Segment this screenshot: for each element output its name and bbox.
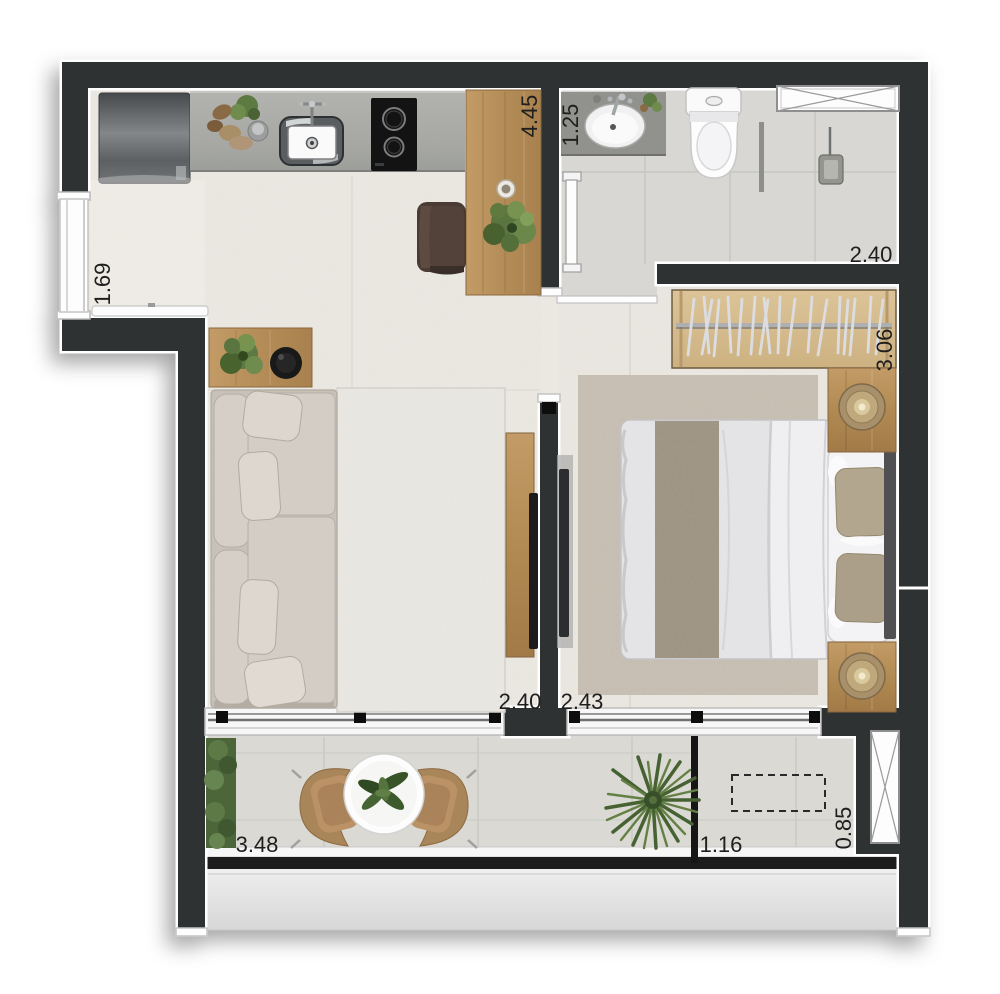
svg-text:0.85: 0.85 xyxy=(831,807,856,850)
svg-text:4.45: 4.45 xyxy=(517,95,542,138)
svg-text:2.43: 2.43 xyxy=(561,689,604,714)
svg-text:1.69: 1.69 xyxy=(90,263,115,306)
svg-text:3.48: 3.48 xyxy=(236,832,279,857)
svg-text:2.40: 2.40 xyxy=(850,242,893,267)
svg-text:1.16: 1.16 xyxy=(700,832,743,857)
svg-text:1.25: 1.25 xyxy=(558,104,583,147)
svg-text:3.06: 3.06 xyxy=(872,329,897,372)
svg-text:2.40: 2.40 xyxy=(499,689,542,714)
